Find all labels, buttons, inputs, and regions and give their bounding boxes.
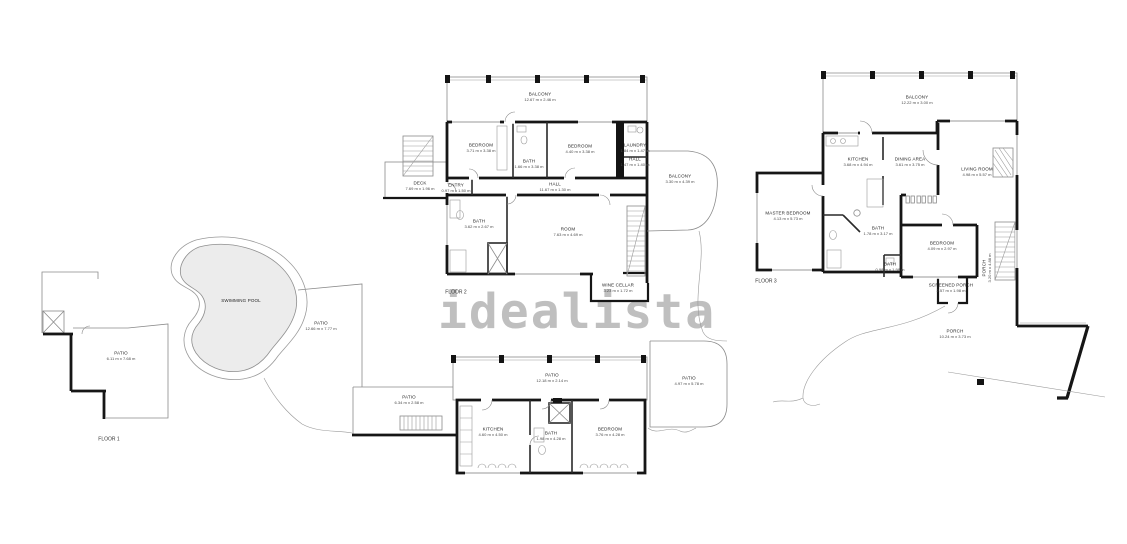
- room-dimensions: 4.09 m x 2.97 m: [927, 246, 956, 251]
- room-label-patio: PATIO6.34 m x 2.58 m: [394, 394, 423, 405]
- room-label-bedroom: BEDROOM3.76 m x 4.28 m: [595, 426, 624, 437]
- room-dimensions: 12.18 m x 2.14 m: [536, 378, 567, 383]
- room-label-kitchen: KITCHEN4.60 m x 4.50 m: [478, 426, 507, 437]
- room-dimensions: 3.62 m x 2.67 m: [464, 224, 493, 229]
- room-dimensions: 10.24 m x 3.73 m: [939, 334, 970, 339]
- room-dimensions: 12.67 m x 2.46 m: [524, 97, 555, 102]
- room-label-balcony: BALCONY3.30 m x 4.39 m: [665, 173, 694, 184]
- room-label-entry: ENTRY0.97 m x 1.50 m: [441, 182, 470, 193]
- room-dimensions: 3.68 m x 4.94 m: [843, 162, 872, 167]
- floor-label-floor-2: FLOOR 2: [445, 289, 466, 295]
- room-label-wine-cellar: WINE CELLAR3.23 m x 1.72 m: [602, 282, 634, 293]
- room-label-swimming-pool: SWIMMING POOL: [221, 298, 261, 304]
- room-dimensions: 4.97 m x 5.78 m: [674, 381, 703, 386]
- room-dimensions: 1.84 m x 1.47 m: [620, 148, 649, 153]
- room-dimensions: 11.67 m x 1.30 m: [540, 187, 571, 192]
- room-dimensions: 12.66 m x 7.77 m: [305, 326, 336, 331]
- room-dimensions: 4.98 m x 5.57 m: [961, 172, 992, 177]
- room-dimensions: 12.22 m x 3.00 m: [901, 100, 932, 105]
- room-label-balcony: BALCONY12.22 m x 3.00 m: [901, 94, 932, 105]
- room-dimensions: 2.57 m x 1.98 m: [929, 288, 973, 293]
- room-label-laundry: LAUNDRY1.84 m x 1.47 m: [620, 142, 649, 153]
- floorplan-page: idealista: [0, 0, 1127, 544]
- room-label-master-bedroom: MASTER BEDROOM4.13 m x 5.73 m: [765, 210, 810, 221]
- room-dimensions: 3.30 m x 4.39 m: [665, 179, 694, 184]
- room-dimensions: 4.40 m x 3.38 m: [565, 149, 594, 154]
- room-dimensions: 4.60 m x 4.50 m: [478, 432, 507, 437]
- room-name: SWIMMING POOL: [221, 298, 261, 304]
- floor-label-floor-3: FLOOR 3: [755, 278, 776, 284]
- room-label-hall: HALL11.67 m x 1.30 m: [540, 181, 571, 192]
- room-dimensions: 3.61 m x 3.75 m: [895, 162, 925, 167]
- room-dimensions: 3.20 m x 4.88 m: [987, 253, 992, 282]
- room-dimensions: 1.47 m x 1.40 m: [620, 162, 649, 167]
- room-labels-layer: FLOOR 1SWIMMING POOLPATIO12.66 m x 7.77 …: [0, 0, 1127, 544]
- room-label-porch: PORCH3.20 m x 4.88 m: [981, 253, 992, 282]
- room-dimensions: 7.63 m x 4.69 m: [553, 232, 582, 237]
- room-label-patio: PATIO4.97 m x 5.78 m: [674, 375, 703, 386]
- room-label-bath: BATH1.66 m x 3.38 m: [514, 158, 543, 169]
- room-dimensions: 1.78 m x 3.17 m: [863, 231, 892, 236]
- floor-label-floor-1: FLOOR 1: [98, 436, 119, 442]
- room-label-bedroom: BEDROOM3.71 m x 3.38 m: [466, 142, 495, 153]
- room-label-dining-area: DINING AREA3.61 m x 3.75 m: [895, 156, 925, 167]
- room-label-kitchen: KITCHEN3.68 m x 4.94 m: [843, 156, 872, 167]
- room-label-deck: DECK7.69 m x 1.96 m: [405, 180, 434, 191]
- room-dimensions: 6.11 m x 7.68 m: [107, 356, 136, 361]
- room-label-patio: PATIO6.11 m x 7.68 m: [107, 350, 136, 361]
- room-label-screened-porch: SCREENED PORCH2.57 m x 1.98 m: [929, 282, 973, 293]
- room-label-porch: PORCH10.24 m x 3.73 m: [939, 328, 970, 339]
- room-dimensions: 0.97 m x 1.50 m: [441, 188, 470, 193]
- room-label-patio: PATIO12.66 m x 7.77 m: [305, 320, 336, 331]
- room-dimensions: 3.76 m x 4.28 m: [595, 432, 624, 437]
- room-label-bath: BATH1.78 m x 3.17 m: [863, 225, 892, 236]
- room-dimensions: 1.98 m x 4.28 m: [536, 436, 565, 441]
- room-dimensions: 3.71 m x 3.38 m: [466, 148, 495, 153]
- room-label-living-room: LIVING ROOM4.98 m x 5.57 m: [961, 166, 992, 177]
- room-dimensions: 6.34 m x 2.58 m: [394, 400, 423, 405]
- room-label-bath: BATH0.98 m x 1.98 m: [875, 261, 904, 272]
- room-dimensions: 1.66 m x 3.38 m: [514, 164, 543, 169]
- room-label-room: ROOM7.63 m x 4.69 m: [553, 226, 582, 237]
- room-dimensions: 3.23 m x 1.72 m: [602, 288, 634, 293]
- room-dimensions: 0.98 m x 1.98 m: [875, 267, 904, 272]
- room-dimensions: 4.13 m x 5.73 m: [765, 216, 810, 221]
- room-label-patio: PATIO12.18 m x 2.14 m: [536, 372, 567, 383]
- room-dimensions: 7.69 m x 1.96 m: [405, 186, 434, 191]
- room-label-bath: BATH3.62 m x 2.67 m: [464, 218, 493, 229]
- room-label-balcony: BALCONY12.67 m x 2.46 m: [524, 91, 555, 102]
- room-label-bedroom: BEDROOM4.40 m x 3.38 m: [565, 143, 594, 154]
- room-label-bedroom: BEDROOM4.09 m x 2.97 m: [927, 240, 956, 251]
- room-label-hall: HALL1.47 m x 1.40 m: [620, 156, 649, 167]
- room-label-bath: BATH1.98 m x 4.28 m: [536, 430, 565, 441]
